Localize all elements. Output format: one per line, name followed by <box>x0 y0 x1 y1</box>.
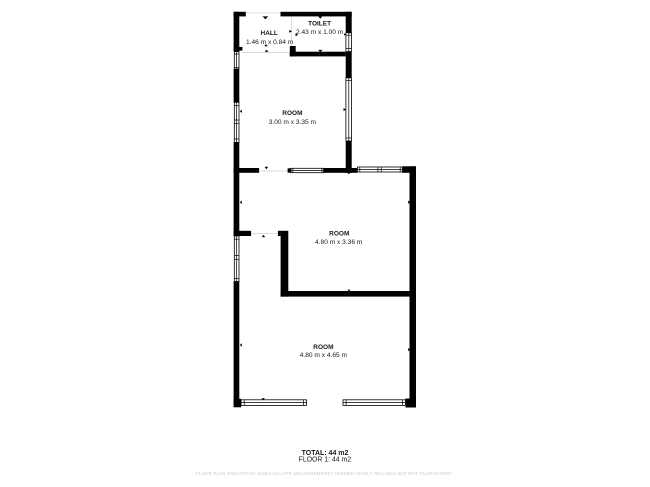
svg-text:HALL: HALL <box>261 30 278 37</box>
svg-text:ROOM: ROOM <box>313 344 333 351</box>
svg-text:ROOM: ROOM <box>329 230 349 237</box>
svg-text:3.00 m x 3.35 m: 3.00 m x 3.35 m <box>269 119 317 126</box>
svg-text:ROOM: ROOM <box>282 110 302 117</box>
svg-text:FLOOR 1: 44 m2: FLOOR 1: 44 m2 <box>299 456 352 463</box>
svg-text:1.46 m x 0.84 m: 1.46 m x 0.84 m <box>246 39 294 46</box>
svg-text:2.43 m x 1.00 m: 2.43 m x 1.00 m <box>296 29 344 36</box>
svg-text:TOILET: TOILET <box>308 21 331 28</box>
svg-text:FLOOR PLAN CREATED BY CUBICASA: FLOOR PLAN CREATED BY CUBICASA APP. MEAS… <box>196 471 453 476</box>
svg-text:4.80 m x 4.65 m: 4.80 m x 4.65 m <box>300 352 348 359</box>
svg-text:4.80 m x 3.36 m: 4.80 m x 3.36 m <box>315 239 363 246</box>
